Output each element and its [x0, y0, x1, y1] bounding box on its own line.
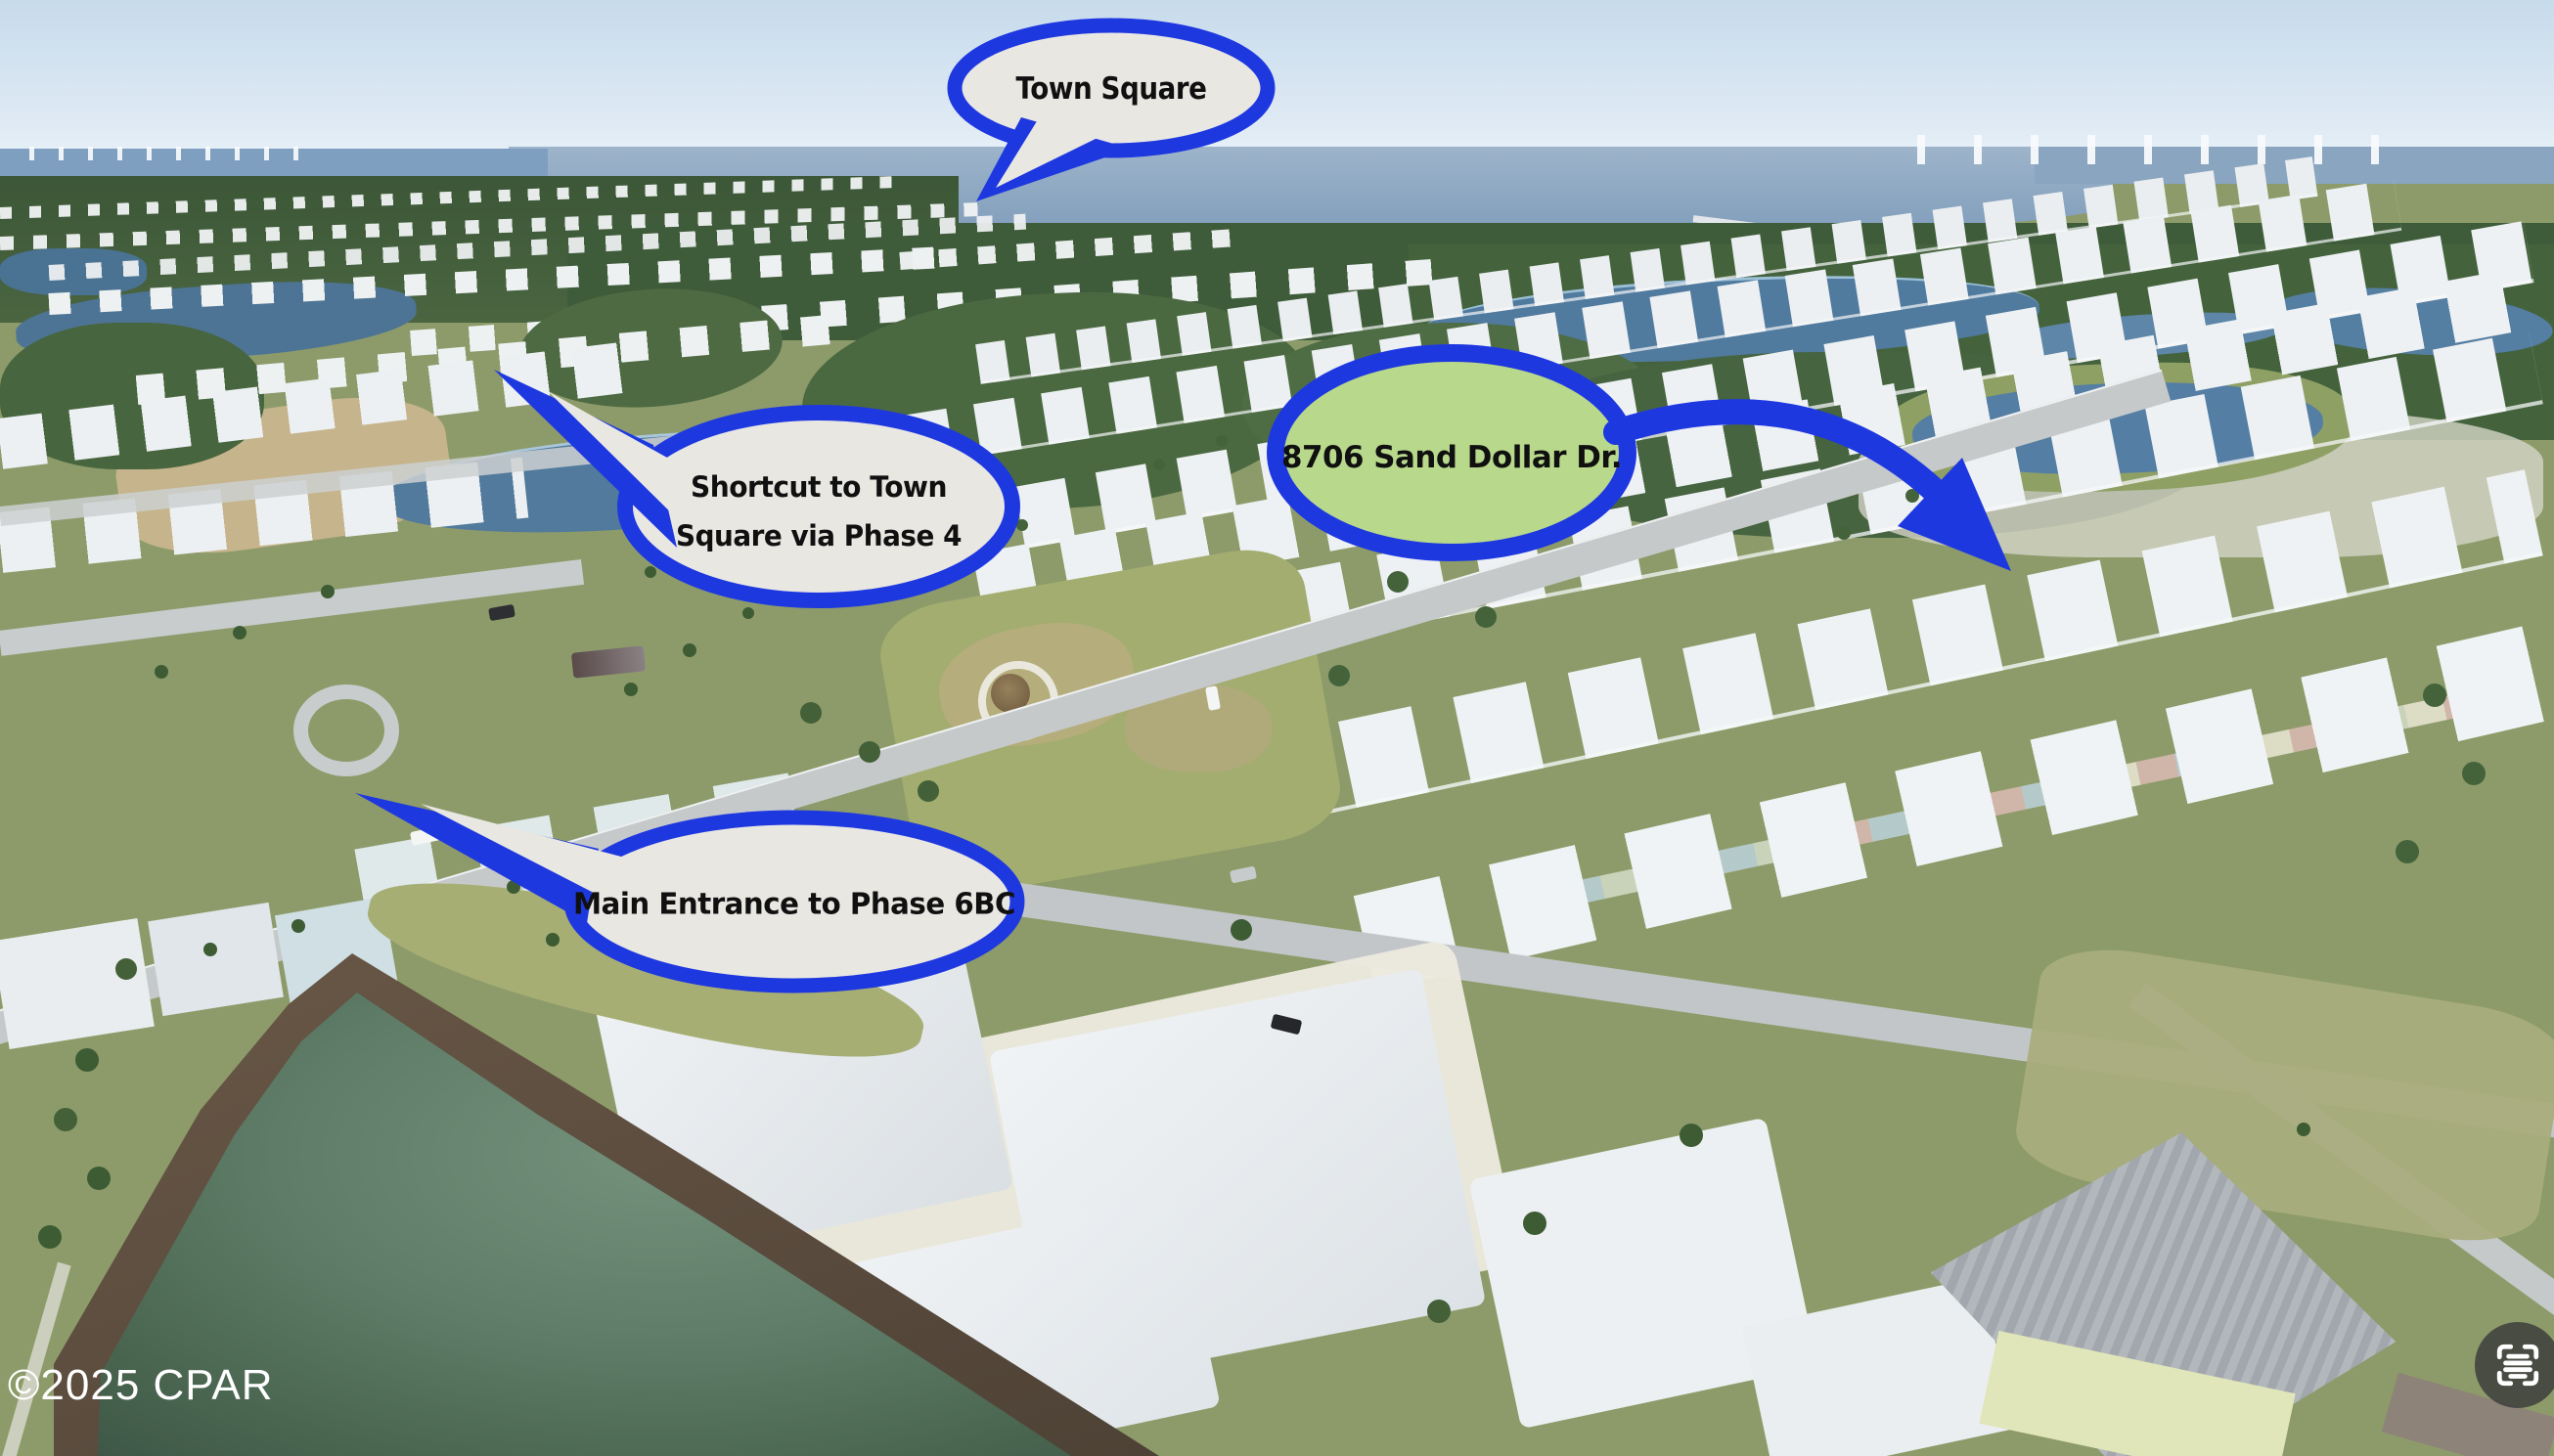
callout-label: Town Square: [1016, 71, 1207, 107]
callout-overlay: Town Square Shortcut to Town Square via …: [0, 0, 2554, 1456]
watermark: ©2025 CPAR: [8, 1361, 274, 1410]
callout-label: Square via Phase 4: [676, 519, 962, 552]
callout-property: 8706 Sand Dollar Dr.: [1276, 353, 2011, 571]
callout-label: Shortcut to Town: [691, 470, 947, 504]
property-label: 8706 Sand Dollar Dr.: [1281, 440, 1622, 475]
callout-label: Main Entrance to Phase 6BC: [573, 888, 1015, 922]
scan-text-icon: [2493, 1341, 2542, 1390]
callout-town-square: Town Square: [955, 25, 1268, 201]
callout-main-entrance: Main Entrance to Phase 6BC: [355, 793, 1017, 986]
callout-shortcut: Shortcut to Town Square via Phase 4: [494, 370, 1012, 600]
property-arrow: [1616, 412, 1935, 491]
annotated-aerial-map: Town Square Shortcut to Town Square via …: [0, 0, 2554, 1456]
scan-button[interactable]: [2475, 1322, 2554, 1408]
